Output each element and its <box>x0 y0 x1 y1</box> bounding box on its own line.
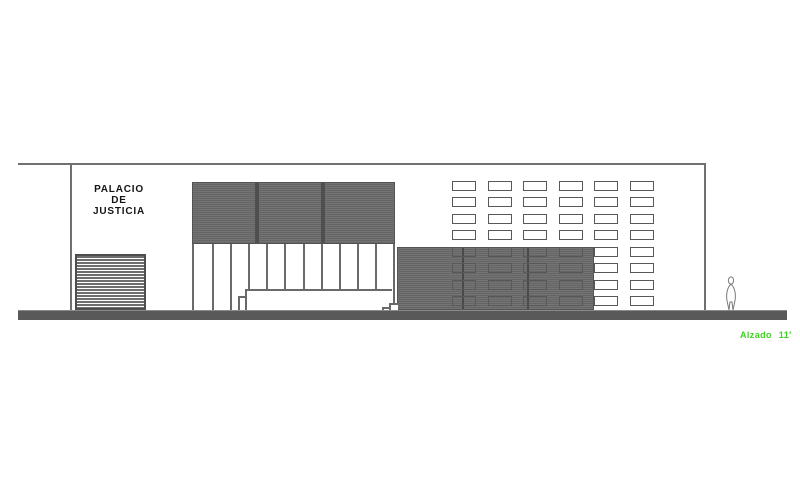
ribbon-window <box>630 280 654 290</box>
ribbon-window <box>594 197 618 207</box>
right-wall-outline <box>704 163 706 310</box>
entry-step <box>389 303 398 310</box>
ribbon-window <box>488 230 512 240</box>
person-figure-icon <box>722 276 740 311</box>
ribbon-window <box>523 230 547 240</box>
ribbon-window <box>559 214 583 224</box>
ribbon-window <box>594 263 618 273</box>
panel-divider <box>321 183 325 243</box>
left-wall-outline <box>70 163 72 310</box>
ribbon-window <box>559 263 583 273</box>
ribbon-window <box>523 181 547 191</box>
ribbon-window <box>594 181 618 191</box>
ribbon-window <box>594 280 618 290</box>
ribbon-window <box>630 263 654 273</box>
ribbon-window <box>452 230 476 240</box>
ribbon-window <box>523 214 547 224</box>
ribbon-window <box>559 296 583 306</box>
ribbon-window <box>630 296 654 306</box>
ribbon-window <box>559 280 583 290</box>
ribbon-window <box>559 230 583 240</box>
mullion <box>212 244 214 310</box>
ribbon-window <box>488 280 512 290</box>
ribbon-window <box>452 280 476 290</box>
ribbon-window <box>594 247 618 257</box>
ribbon-window <box>594 230 618 240</box>
building-title: PALACIO DE JUSTICIA <box>78 184 160 217</box>
ribbon-window <box>452 214 476 224</box>
louver-door <box>75 254 146 310</box>
roof-outline <box>18 163 706 165</box>
ribbon-window <box>523 263 547 273</box>
ribbon-window <box>488 296 512 306</box>
ribbon-window <box>559 197 583 207</box>
upper-facade-panels <box>192 182 395 244</box>
ribbon-window <box>452 263 476 273</box>
ribbon-window <box>452 296 476 306</box>
ribbon-window <box>452 247 476 257</box>
ribbon-window <box>630 247 654 257</box>
ribbon-window <box>523 247 547 257</box>
ribbon-window <box>488 181 512 191</box>
panel-divider <box>255 183 259 243</box>
ribbon-window <box>488 263 512 273</box>
ribbon-window <box>630 181 654 191</box>
ribbon-window <box>523 296 547 306</box>
ribbon-window <box>488 214 512 224</box>
ribbon-window <box>452 181 476 191</box>
ribbon-window <box>594 214 618 224</box>
ribbon-window <box>594 296 618 306</box>
ribbon-window <box>630 230 654 240</box>
ribbon-window <box>630 197 654 207</box>
plinth-wall <box>245 289 392 310</box>
mullion <box>230 244 232 310</box>
ribbon-window <box>630 214 654 224</box>
elevation-label: Alzado 11′ <box>740 330 792 340</box>
ribbon-window <box>523 280 547 290</box>
ribbon-window <box>488 247 512 257</box>
elevation-drawing: PALACIO DE JUSTICIA Alzado 11′ <box>0 0 800 500</box>
ribbon-window <box>488 197 512 207</box>
ribbon-window <box>523 197 547 207</box>
ground-line <box>18 310 787 320</box>
ribbon-window <box>559 181 583 191</box>
ribbon-window <box>452 197 476 207</box>
ribbon-window <box>559 247 583 257</box>
